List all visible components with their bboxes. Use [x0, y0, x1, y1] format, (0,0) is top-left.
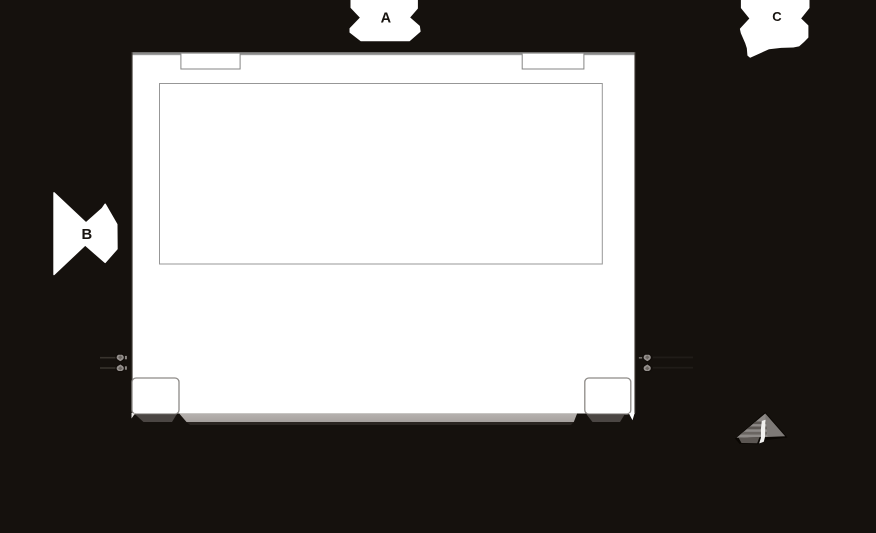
- svg-text:B: B: [81, 227, 92, 243]
- svg-text:A: A: [381, 10, 392, 26]
- svg-text:C: C: [772, 9, 782, 24]
